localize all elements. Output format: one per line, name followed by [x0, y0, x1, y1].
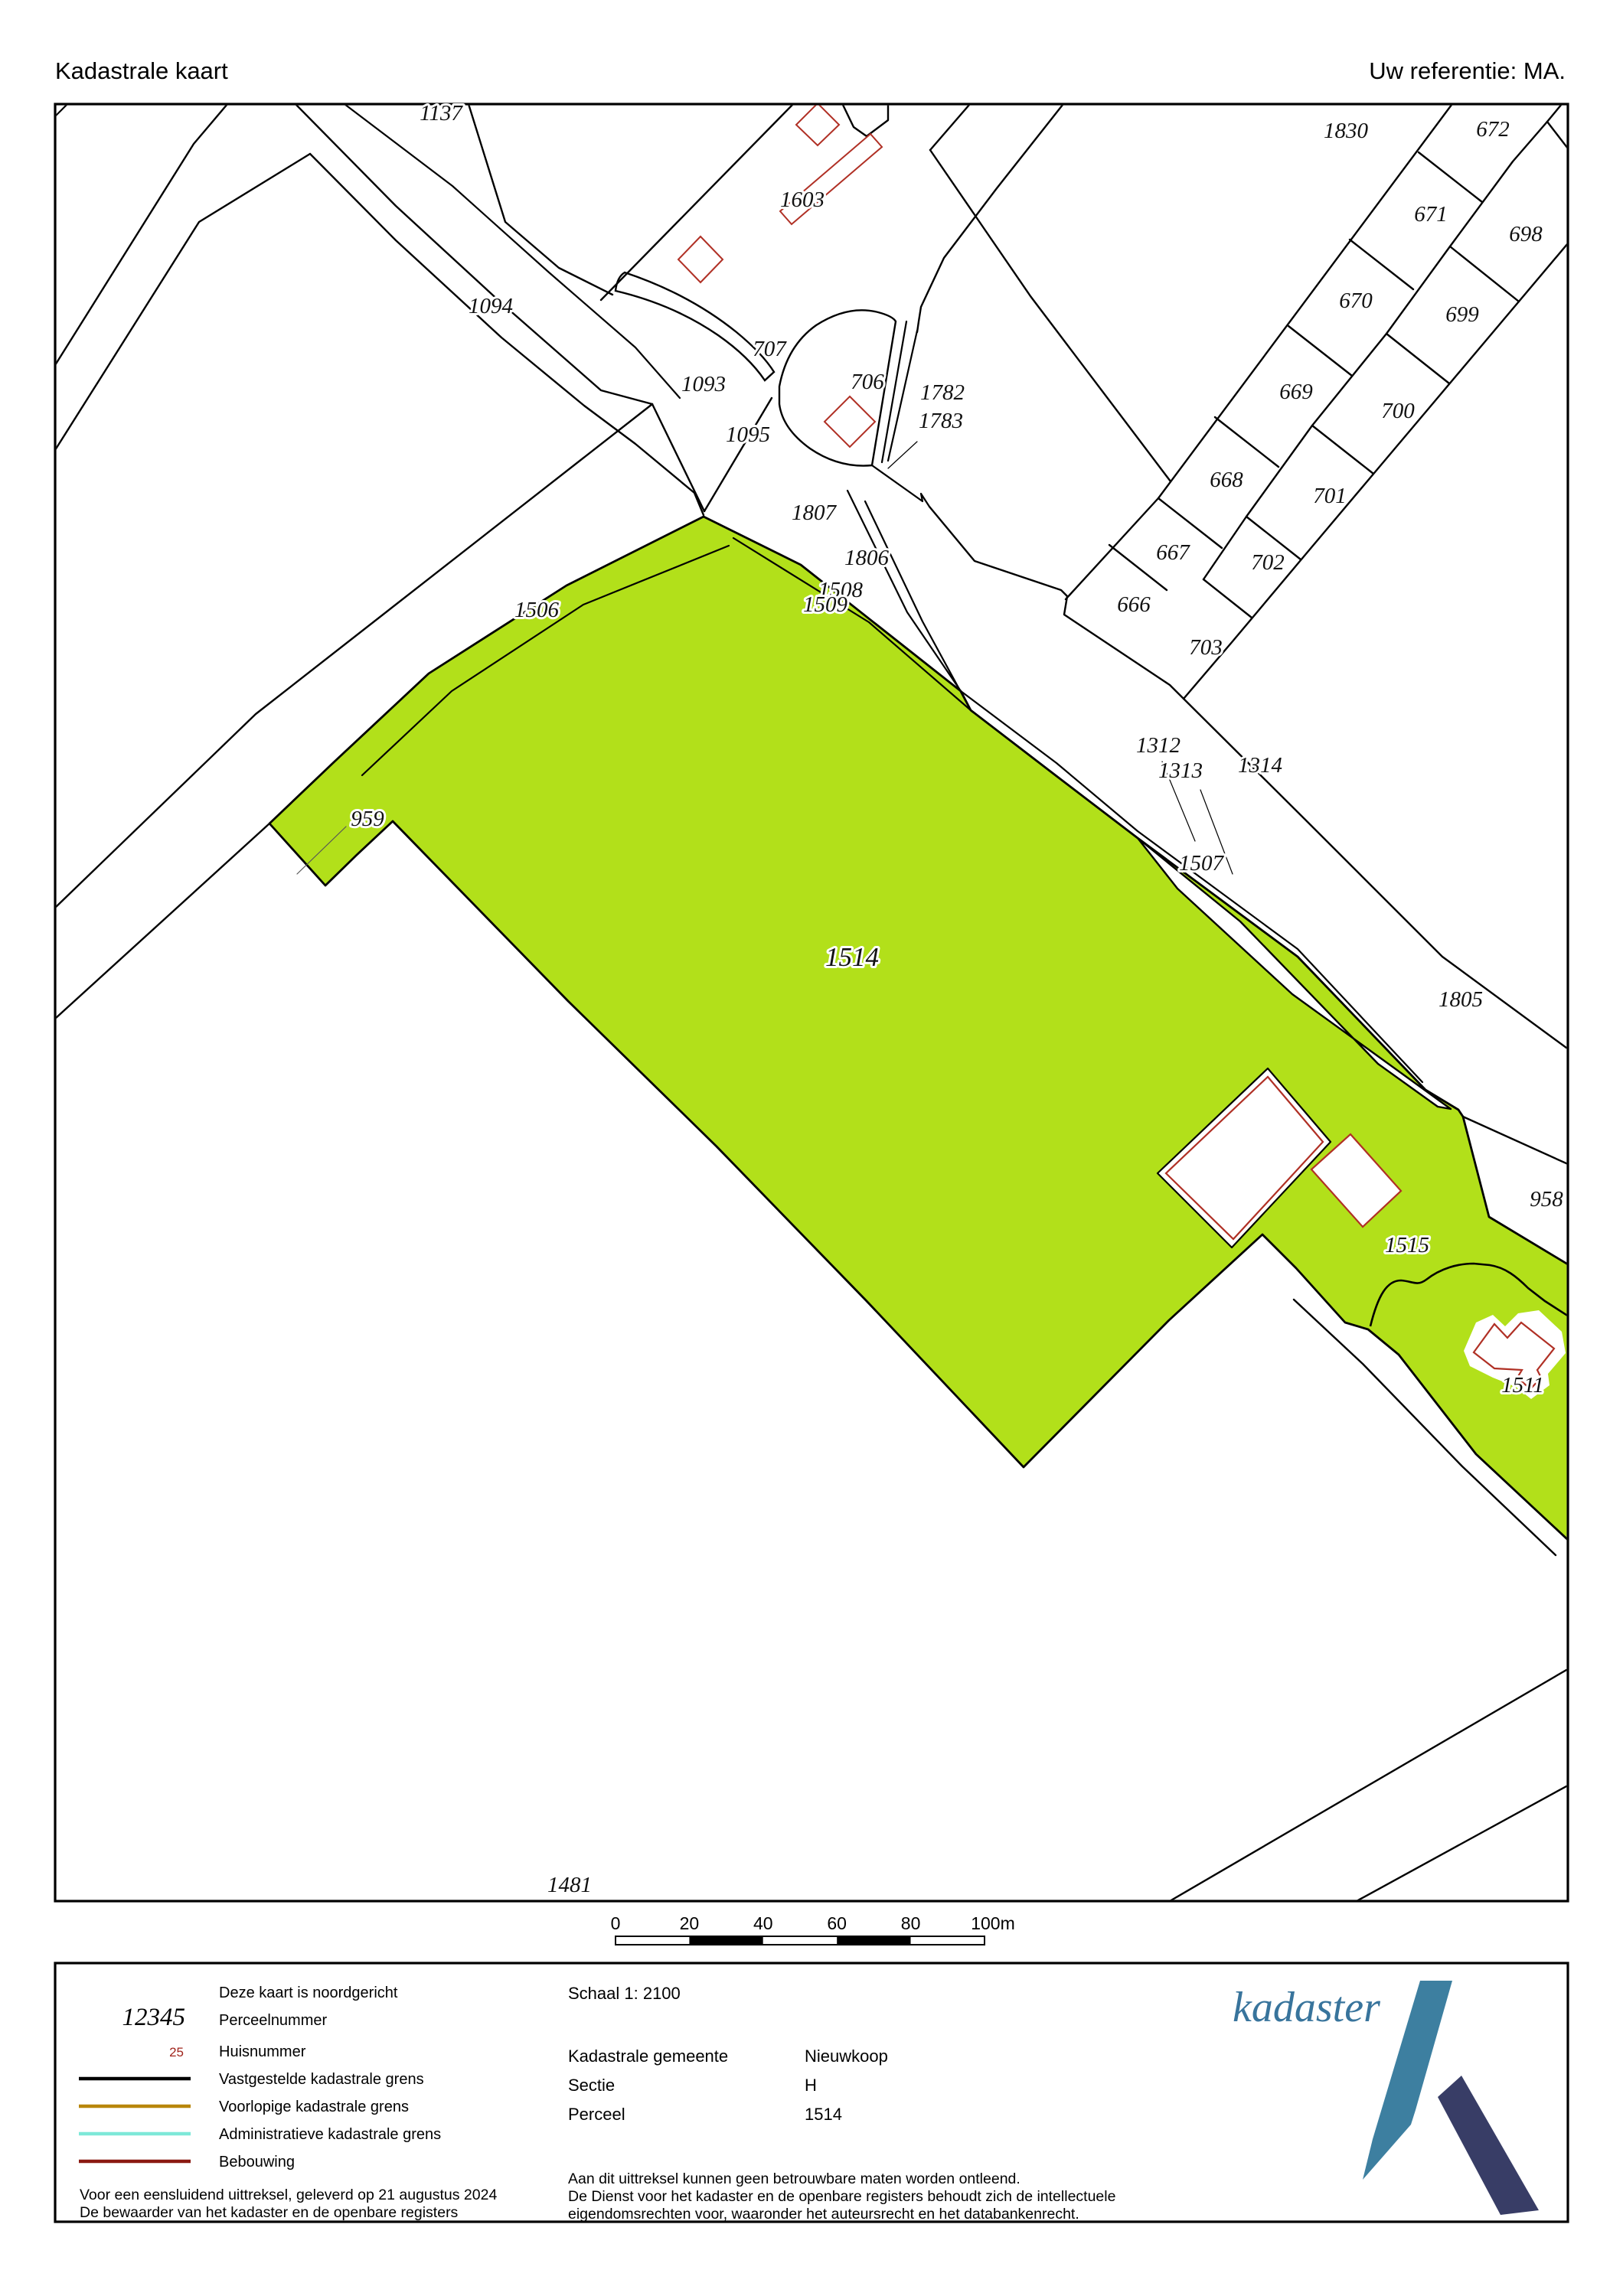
- svg-text:1313: 1313: [1158, 758, 1203, 783]
- svg-text:702: 702: [1251, 550, 1285, 575]
- svg-text:Vastgestelde kadastrale grens: Vastgestelde kadastrale grens: [219, 2071, 424, 2088]
- svg-text:703: 703: [1189, 635, 1223, 660]
- svg-text:100m: 100m: [971, 1913, 1015, 1933]
- svg-text:698: 698: [1509, 222, 1543, 246]
- svg-text:671: 671: [1414, 202, 1448, 227]
- svg-text:60: 60: [827, 1913, 847, 1933]
- svg-text:1093: 1093: [681, 372, 726, 396]
- svg-text:1830: 1830: [1324, 119, 1369, 143]
- svg-text:1481: 1481: [547, 1873, 592, 1897]
- svg-text:707: 707: [753, 337, 787, 361]
- svg-text:699: 699: [1445, 302, 1479, 327]
- svg-text:670: 670: [1339, 289, 1373, 313]
- svg-text:700: 700: [1381, 399, 1415, 423]
- svg-text:40: 40: [753, 1913, 773, 1933]
- svg-text:De Dienst voor het kadaster en: De Dienst voor het kadaster en de openba…: [568, 2188, 1115, 2205]
- svg-text:Schaal 1: 2100: Schaal 1: 2100: [568, 1984, 681, 2003]
- svg-text:20: 20: [680, 1913, 700, 1933]
- svg-text:1514: 1514: [805, 2105, 842, 2124]
- svg-text:1312: 1312: [1136, 733, 1181, 758]
- svg-text:kadaster: kadaster: [1233, 1984, 1380, 2031]
- svg-text:Bebouwing: Bebouwing: [219, 2154, 295, 2170]
- svg-text:Voorlopige kadastrale grens: Voorlopige kadastrale grens: [219, 2099, 409, 2115]
- svg-text:Deze kaart is noordgericht: Deze kaart is noordgericht: [219, 1985, 398, 2001]
- svg-text:1137: 1137: [420, 101, 463, 126]
- svg-text:1603: 1603: [780, 188, 825, 212]
- svg-text:1506: 1506: [514, 598, 560, 622]
- svg-text:H: H: [805, 2076, 817, 2095]
- svg-text:Uw referentie: MA.: Uw referentie: MA.: [1369, 57, 1566, 84]
- svg-text:1805: 1805: [1438, 987, 1483, 1012]
- svg-text:1507: 1507: [1179, 851, 1225, 876]
- svg-text:Voor een eensluidend uittrekse: Voor een eensluidend uittreksel, gelever…: [80, 2187, 497, 2203]
- svg-text:Kadastrale gemeente: Kadastrale gemeente: [568, 2047, 728, 2066]
- svg-text:1515: 1515: [1385, 1233, 1429, 1257]
- svg-text:Kadastrale kaart: Kadastrale kaart: [55, 57, 228, 84]
- svg-text:Aan dit uittreksel kunnen geen: Aan dit uittreksel kunnen geen betrouwba…: [568, 2170, 1020, 2187]
- svg-text:1783: 1783: [919, 409, 963, 433]
- svg-text:Sectie: Sectie: [568, 2076, 615, 2095]
- svg-text:0: 0: [611, 1913, 621, 1933]
- svg-text:eigendomsrechten voor, waarond: eigendomsrechten voor, waaronder het aut…: [568, 2206, 1079, 2223]
- svg-text:Perceel: Perceel: [568, 2105, 625, 2124]
- svg-text:1514: 1514: [825, 942, 879, 972]
- svg-text:1314: 1314: [1238, 753, 1282, 778]
- svg-text:Huisnummer: Huisnummer: [219, 2043, 306, 2060]
- svg-text:958: 958: [1530, 1187, 1563, 1212]
- svg-text:Nieuwkoop: Nieuwkoop: [805, 2047, 888, 2066]
- svg-text:669: 669: [1279, 380, 1313, 404]
- svg-text:1095: 1095: [726, 422, 770, 447]
- svg-text:959: 959: [351, 807, 384, 831]
- svg-text:667: 667: [1156, 540, 1190, 565]
- svg-text:1509: 1509: [803, 592, 848, 617]
- svg-text:666: 666: [1117, 592, 1151, 617]
- svg-text:25: 25: [169, 2045, 184, 2060]
- svg-text:668: 668: [1210, 468, 1243, 492]
- svg-text:1094: 1094: [469, 294, 513, 318]
- svg-text:Administratieve kadastrale gre: Administratieve kadastrale grens: [219, 2126, 441, 2143]
- svg-text:80: 80: [901, 1913, 921, 1933]
- svg-text:672: 672: [1476, 117, 1510, 142]
- svg-text:706: 706: [851, 370, 884, 394]
- svg-text:701: 701: [1313, 484, 1347, 508]
- svg-text:De bewaarder van het kadaster: De bewaarder van het kadaster en de open…: [80, 2204, 459, 2221]
- svg-text:1807: 1807: [792, 501, 838, 525]
- svg-text:Perceelnummer: Perceelnummer: [219, 2012, 328, 2029]
- svg-text:1806: 1806: [844, 546, 890, 570]
- svg-text:12345: 12345: [122, 2004, 186, 2031]
- svg-text:1511: 1511: [1501, 1373, 1544, 1397]
- svg-text:1782: 1782: [920, 380, 965, 405]
